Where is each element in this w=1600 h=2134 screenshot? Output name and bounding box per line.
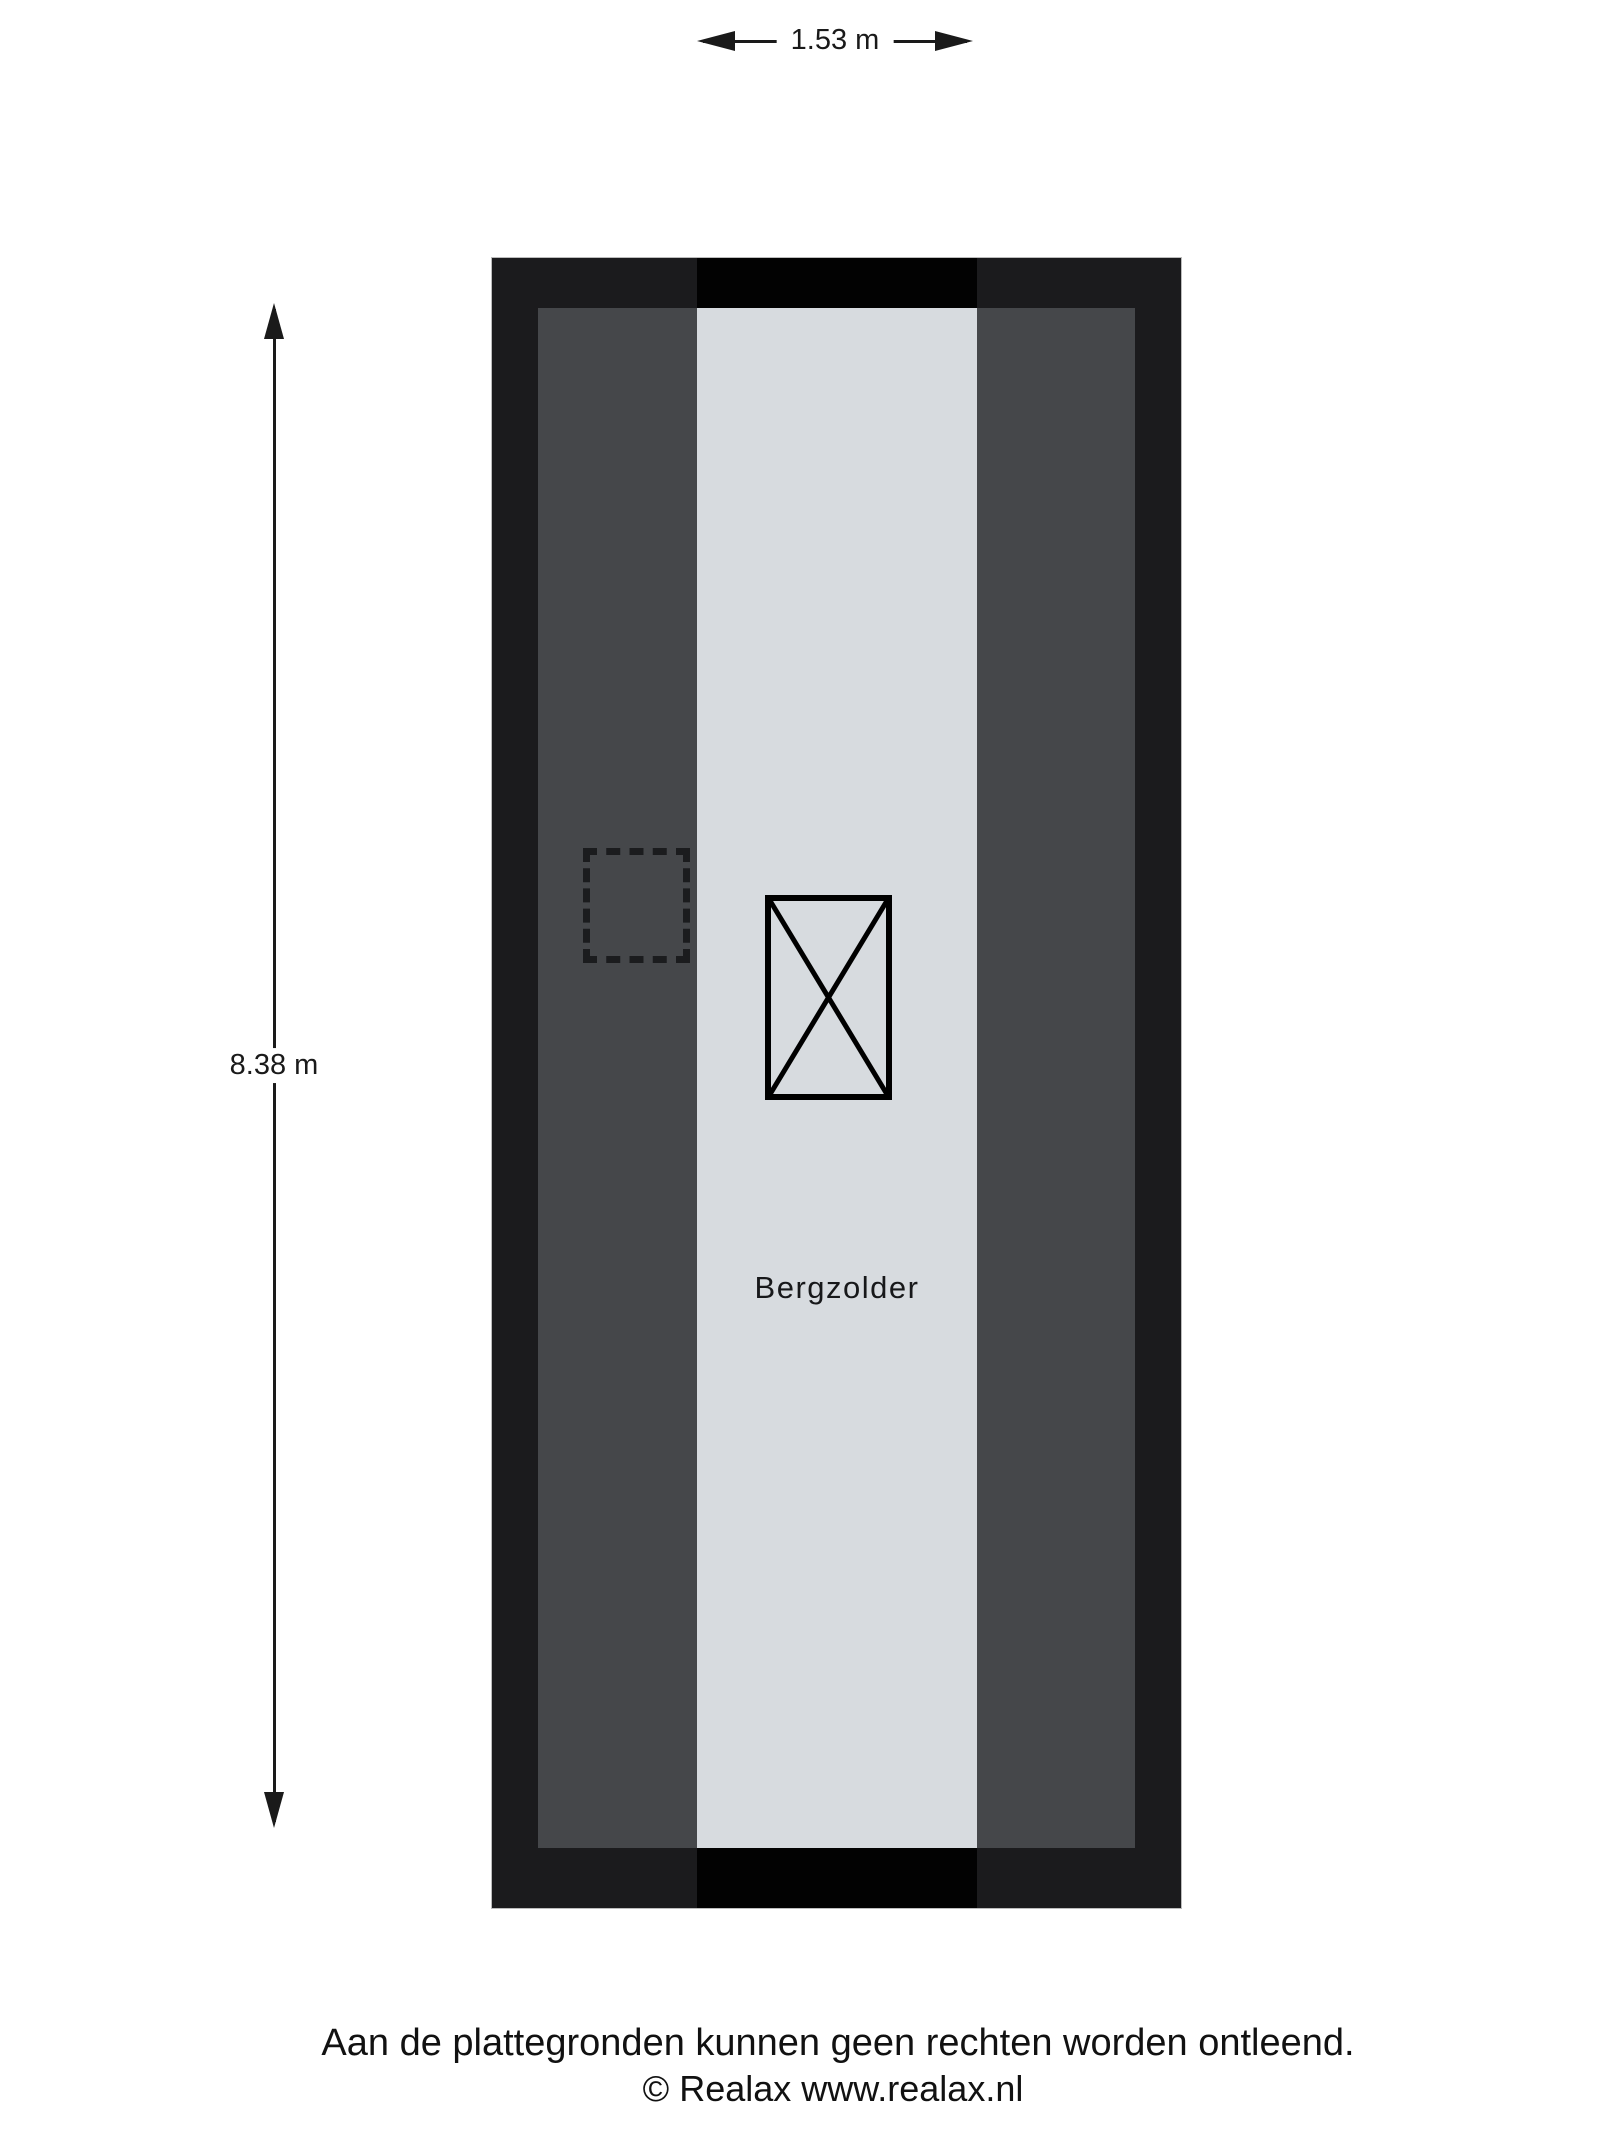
height-dimension-label: 8.38 m [216,1048,333,1084]
disclaimer-text: Aan de plattegronden kunnen geen rechten… [321,2022,1354,2065]
arrowhead-down-icon [264,1792,284,1828]
width-dimension-label: 1.53 m [777,23,894,59]
width-dimension: 1.53 m [697,20,973,62]
ridge-opening-top [697,258,977,308]
stair-void-marker [765,895,892,1100]
roof-slope-left [538,308,697,1848]
copyright-text: © Realax www.realax.nl [643,2068,1024,2110]
stair-cross-icon [765,895,892,1100]
floorplan-page: 1.53 m 8.38 m Bergzolder Aan de plattegr… [0,0,1600,2134]
room-label: Bergzolder [697,1270,977,1306]
dashed-opening-outline [583,848,690,963]
arrowhead-right-icon [935,31,973,51]
ridge-opening-bottom [697,1848,977,1908]
arrowhead-up-icon [264,303,284,339]
floorplan: Bergzolder [492,258,1181,1908]
height-dimension: 8.38 m [254,303,294,1828]
roof-slope-right [977,308,1135,1848]
arrowhead-left-icon [697,31,735,51]
